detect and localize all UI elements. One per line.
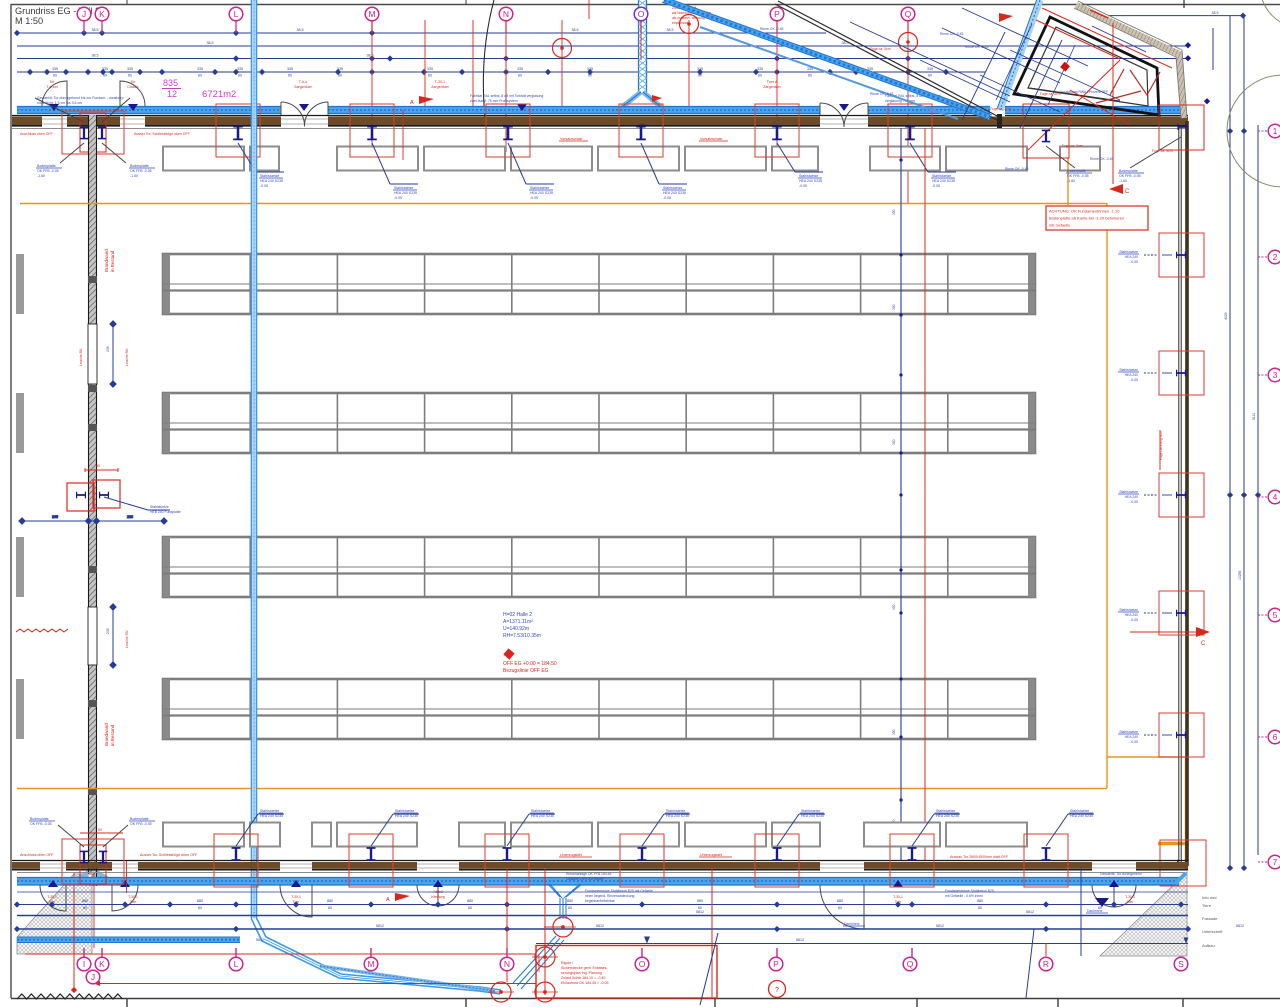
svg-text:-0.05: -0.05 xyxy=(394,196,402,200)
svg-text:350: 350 xyxy=(892,729,896,735)
svg-text:HEA 240 S235: HEA 240 S235 xyxy=(799,179,822,183)
svg-text:5812: 5812 xyxy=(376,924,384,928)
svg-text:?: ? xyxy=(775,987,779,994)
svg-text:T-30-1: T-30-1 xyxy=(435,80,445,84)
svg-text:Stahlstuetze: Stahlstuetze xyxy=(1119,490,1138,494)
svg-text:HEA 240: HEA 240 xyxy=(1125,613,1138,617)
svg-text:Stahlstuetze: Stahlstuetze xyxy=(1119,608,1138,612)
svg-text:Fuge ca. 3cm: Fuge ca. 3cm xyxy=(990,107,1011,111)
svg-text:HEA 240: HEA 240 xyxy=(1125,735,1138,739)
svg-text:5812: 5812 xyxy=(596,924,604,928)
svg-text:HEA 240 S235: HEA 240 S235 xyxy=(666,814,689,818)
svg-text:2: 2 xyxy=(1273,252,1278,262)
svg-text:-0.05: -0.05 xyxy=(799,184,807,188)
svg-text:-0.05: -0.05 xyxy=(1130,740,1138,744)
svg-text:880: 880 xyxy=(327,899,333,903)
svg-text:Bodenplatte ab Kante bei -1.20: Bodenplatte ab Kante bei -1.20 betoniere… xyxy=(1049,216,1124,221)
svg-text:Fundamentrinne Stahlbeton B25: Fundamentrinne Stahlbeton B25 xyxy=(945,889,994,893)
svg-text:Vorsatzschale: Vorsatzschale xyxy=(700,137,722,141)
svg-text:Info und: Info und xyxy=(1202,895,1216,900)
svg-text:HEA 240 S235: HEA 240 S235 xyxy=(395,814,418,818)
svg-text:Sinkkasten: Sinkkasten xyxy=(537,954,541,972)
svg-text:Anschluss oben OFF: Anschluss oben OFF xyxy=(20,132,53,136)
svg-text:60: 60 xyxy=(328,906,332,910)
svg-text:Bodenplatte: Bodenplatte xyxy=(130,817,149,821)
svg-text:60: 60 xyxy=(698,74,702,78)
svg-text:HEA 240: HEA 240 xyxy=(1125,255,1138,259)
svg-text:38.5: 38.5 xyxy=(92,54,99,58)
svg-text:Stahlstuetze: Stahlstuetze xyxy=(530,186,549,190)
svg-text:Fuge ca. 3cm: Fuge ca. 3cm xyxy=(870,47,891,51)
svg-text:350: 350 xyxy=(892,604,896,610)
svg-text:P: P xyxy=(774,9,780,19)
svg-text:Ausser Tor, Schliessfolge oben: Ausser Tor, Schliessfolge oben OFF xyxy=(134,132,190,136)
svg-text:Rinne OK -0.45: Rinne OK -0.45 xyxy=(940,32,963,36)
svg-text:Kiesfang: Kiesfang xyxy=(431,895,444,899)
svg-text:335: 335 xyxy=(52,67,58,71)
svg-text:OK FFB -0.05: OK FFB -0.05 xyxy=(1119,174,1141,178)
svg-text:Leuchte RN: Leuchte RN xyxy=(125,348,129,366)
svg-text:Stahlstuetze: Stahlstuetze xyxy=(801,809,820,813)
svg-text:K: K xyxy=(99,9,105,19)
svg-text:60: 60 xyxy=(103,74,107,78)
svg-text:Bodenplatte: Bodenplatte xyxy=(30,817,49,821)
svg-text:C: C xyxy=(1125,189,1130,195)
svg-text:Stahlstuetze: Stahlstuetze xyxy=(663,186,682,190)
svg-text:Zargentuer: Zargentuer xyxy=(294,85,312,89)
svg-text:-0.05: -0.05 xyxy=(1130,378,1138,382)
svg-text:Fuge ca. 3cm: Fuge ca. 3cm xyxy=(1062,144,1083,148)
svg-text:L: L xyxy=(234,9,239,19)
svg-text:HEA 240 S235: HEA 240 S235 xyxy=(932,179,955,183)
svg-text:60: 60 xyxy=(128,74,132,78)
svg-text:Stahlstuetze: Stahlstuetze xyxy=(150,505,169,509)
svg-text:OK FFB -0.05: OK FFB -0.05 xyxy=(130,822,152,826)
svg-text:Stahlstuetze: Stahlstuetze xyxy=(394,186,413,190)
svg-text:Ausser Tor, Schliessfolge oben: Ausser Tor, Schliessfolge oben OFF xyxy=(140,853,198,857)
svg-text:60: 60 xyxy=(198,906,202,910)
svg-text:Stahlstuetze: Stahlstuetze xyxy=(799,174,818,178)
svg-text:Stahlstuetze: Stahlstuetze xyxy=(395,809,414,813)
svg-text:80: 80 xyxy=(96,464,100,468)
svg-text:335: 335 xyxy=(237,67,243,71)
svg-text:Rinne OK -0.45: Rinne OK -0.45 xyxy=(965,45,988,49)
svg-text:335: 335 xyxy=(697,67,703,71)
svg-text:HEA 240 S235: HEA 240 S235 xyxy=(663,191,686,195)
svg-text:335: 335 xyxy=(587,67,593,71)
svg-text:OK FFB -0.05: OK FFB -0.05 xyxy=(37,169,59,173)
svg-text:M: M xyxy=(368,9,375,19)
svg-text:-0.05: -0.05 xyxy=(530,196,538,200)
svg-text:P: P xyxy=(773,959,779,969)
svg-text:6: 6 xyxy=(1273,732,1278,742)
svg-text:A: A xyxy=(386,897,390,903)
svg-text:HEA 240 S235: HEA 240 S235 xyxy=(260,814,283,818)
svg-text:5812: 5812 xyxy=(936,924,944,928)
svg-text:Zargentuer: Zargentuer xyxy=(763,85,781,89)
svg-text:Leuchte RN: Leuchte RN xyxy=(125,630,129,648)
svg-text:3: 3 xyxy=(1273,370,1278,380)
svg-text:Bodenplatte: Bodenplatte xyxy=(1067,169,1086,173)
svg-text:Zargentuer: Zargentuer xyxy=(431,85,449,89)
svg-text:Stahlstuetze: Stahlstuetze xyxy=(1070,809,1089,813)
svg-text:60: 60 xyxy=(838,906,842,910)
svg-text:serungsplan Ing. Planung: serungsplan Ing. Planung xyxy=(561,971,602,975)
svg-text:N: N xyxy=(503,9,509,19)
svg-text:OK FFB -0.05: OK FFB -0.05 xyxy=(30,822,52,826)
svg-text:OFF EG +0.00 = 184.50: OFF EG +0.00 = 184.50 xyxy=(503,661,557,667)
svg-text:Q: Q xyxy=(907,959,914,969)
svg-text:10255: 10255 xyxy=(1238,570,1242,580)
svg-text:A: A xyxy=(410,100,414,106)
svg-text:Stahlstuetze: Stahlstuetze xyxy=(531,809,550,813)
svg-text:5: 5 xyxy=(1273,610,1278,620)
svg-text:4: 4 xyxy=(1273,492,1278,502)
svg-text:Gefaelle 0.5% zur Rigole: Gefaelle 0.5% zur Rigole xyxy=(566,877,604,881)
svg-text:RH=7.53/10.35m: RH=7.53/10.35m xyxy=(503,633,541,639)
svg-text:4025: 4025 xyxy=(1224,312,1228,320)
svg-text:295: 295 xyxy=(52,515,58,519)
svg-text:N: N xyxy=(504,959,510,969)
svg-text:38.5: 38.5 xyxy=(572,28,579,32)
svg-text:5812: 5812 xyxy=(696,910,704,914)
svg-text:HEA 240 S235: HEA 240 S235 xyxy=(260,179,283,183)
svg-text:Gewaehlt: Tor durchgehend bis: Gewaehlt: Tor durchgehend bis zur Fundam… xyxy=(37,96,124,100)
svg-text:5812: 5812 xyxy=(256,938,264,942)
svg-text:HEA 240 S235: HEA 240 S235 xyxy=(531,814,554,818)
svg-text:-1.60: -1.60 xyxy=(1119,179,1127,183)
svg-text:nicht dicht, 1.5 cm bis 3.5 cm: nicht dicht, 1.5 cm bis 3.5 cm xyxy=(37,101,82,105)
svg-text:J: J xyxy=(82,9,86,19)
svg-text:Unterschrift: Unterschrift xyxy=(1202,929,1223,934)
svg-text:OK FFB -0.05: OK FFB -0.05 xyxy=(1067,174,1089,178)
svg-text:38.5: 38.5 xyxy=(367,54,374,58)
svg-text:Vorsatzschale: Vorsatzschale xyxy=(560,137,582,141)
svg-text:Stahlstuetze: Stahlstuetze xyxy=(1119,730,1138,734)
svg-text:60: 60 xyxy=(238,74,242,78)
svg-text:HEA 240: HEA 240 xyxy=(1125,373,1138,377)
svg-text:A=1371.11m²: A=1371.11m² xyxy=(503,619,533,625)
svg-text:Zulauf Sohle 184.10 = -0.40: Zulauf Sohle 184.10 = -0.40 xyxy=(561,976,605,980)
svg-text:350: 350 xyxy=(892,439,896,445)
svg-text:Einlaufrost OK 184.45 = -0.05: Einlaufrost OK 184.45 = -0.05 xyxy=(561,981,608,985)
svg-text:60: 60 xyxy=(978,906,982,910)
svg-text:60: 60 xyxy=(758,74,762,78)
svg-text:I: I xyxy=(83,959,85,969)
svg-text:T-30-1: T-30-1 xyxy=(1125,895,1135,899)
svg-text:-0.05: -0.05 xyxy=(1130,618,1138,622)
svg-text:Q: Q xyxy=(905,9,912,19)
svg-text:60: 60 xyxy=(83,906,87,910)
svg-text:5812: 5812 xyxy=(796,938,804,942)
svg-text:HEA 240 S235: HEA 240 S235 xyxy=(801,814,824,818)
svg-text:in Bestand: in Bestand xyxy=(110,250,115,272)
svg-text:M: M xyxy=(367,959,374,969)
svg-text:-0.05: -0.05 xyxy=(1130,260,1138,264)
svg-text:T-b-u: T-b-u xyxy=(299,80,307,84)
svg-text:Stahlstuetze: Stahlstuetze xyxy=(666,809,685,813)
svg-text:12: 12 xyxy=(167,89,177,99)
svg-text:880: 880 xyxy=(837,899,843,903)
svg-text:38.5: 38.5 xyxy=(297,28,304,32)
svg-text:-0.05: -0.05 xyxy=(260,184,268,188)
svg-text:Rigole /: Rigole / xyxy=(561,961,573,965)
svg-text:mit Gefaelle - 0.5% innen: mit Gefaelle - 0.5% innen xyxy=(945,894,983,898)
svg-text:M 1:50: M 1:50 xyxy=(15,16,43,26)
svg-text:38.5: 38.5 xyxy=(667,28,674,32)
svg-text:335: 335 xyxy=(927,67,933,71)
svg-text:60: 60 xyxy=(518,74,522,78)
svg-text:335: 335 xyxy=(287,67,293,71)
svg-text:Fabrikat RAL selbst, 8 dB mit: Fabrikat RAL selbst, 8 dB mit Torblatt v… xyxy=(470,94,543,98)
svg-text:HEA 240 S235: HEA 240 S235 xyxy=(1070,814,1093,818)
svg-text:335: 335 xyxy=(337,67,343,71)
svg-text:ACHTUNG: OK Fundamentrinnen -: ACHTUNG: OK Fundamentrinnen -1.10 xyxy=(1049,209,1120,214)
svg-text:60: 60 xyxy=(198,74,202,78)
svg-text:L: L xyxy=(234,959,239,969)
svg-text:Stahlstuetze: Stahlstuetze xyxy=(932,174,951,178)
svg-text:335: 335 xyxy=(102,67,108,71)
svg-text:Ausbau Tor 2800/4500mm statt O: Ausbau Tor 2800/4500mm statt OFF xyxy=(950,855,1009,859)
svg-text:-0.05: -0.05 xyxy=(663,196,671,200)
svg-text:Bezugslinie OFF EG: Bezugslinie OFF EG xyxy=(503,668,549,674)
svg-text:Tuer A: Tuer A xyxy=(767,80,778,84)
svg-text:Leuchte RN: Leuchte RN xyxy=(79,348,83,366)
svg-text:S: S xyxy=(1178,959,1184,969)
svg-text:als zusaetzl. oeffnung: als zusaetzl. oeffnung xyxy=(672,16,705,20)
svg-text:Rinne OK -0.45: Rinne OK -0.45 xyxy=(1090,157,1113,161)
svg-text:Fundamentrinne Stahlbeton B25: Fundamentrinne Stahlbeton B25 mit Gefael… xyxy=(585,889,653,893)
svg-text:60: 60 xyxy=(588,74,592,78)
svg-text:1: 1 xyxy=(1273,126,1278,136)
svg-text:335: 335 xyxy=(517,67,523,71)
svg-text:5812: 5812 xyxy=(1026,910,1034,914)
svg-text:60: 60 xyxy=(808,74,812,78)
svg-text:5110: 5110 xyxy=(1252,413,1256,420)
svg-text:38.5: 38.5 xyxy=(1212,11,1219,15)
svg-text:K: K xyxy=(99,959,105,969)
svg-text:Aufbau: Aufbau xyxy=(1202,943,1215,948)
svg-text:236: 236 xyxy=(106,628,110,634)
svg-text:-0.05: -0.05 xyxy=(932,184,940,188)
svg-text:J: J xyxy=(91,972,95,982)
svg-text:Gewaehlt: Tor durchgehend: Gewaehlt: Tor durchgehend xyxy=(1100,872,1142,876)
svg-text:T-30-1: T-30-1 xyxy=(47,895,57,899)
svg-text:in Bestand: in Bestand xyxy=(110,724,115,746)
svg-text:O: O xyxy=(639,959,646,969)
svg-text:Bodenplatte: Bodenplatte xyxy=(37,164,56,168)
svg-text:880: 880 xyxy=(467,899,473,903)
svg-text:335: 335 xyxy=(427,67,433,71)
svg-text:880: 880 xyxy=(977,899,983,903)
svg-text:Tuer: Tuer xyxy=(1127,900,1135,904)
svg-text:350: 350 xyxy=(892,209,896,215)
svg-text:HEB 240 Fundplatte: HEB 240 Fundplatte xyxy=(150,510,181,514)
svg-text:38.5: 38.5 xyxy=(207,41,214,45)
svg-text:Stahlstuetze: Stahlstuetze xyxy=(1119,368,1138,372)
svg-text:Rinne OK -0.45: Rinne OK -0.45 xyxy=(1005,167,1028,171)
svg-text:Tuer: Tuer xyxy=(130,900,138,904)
svg-text:Unterzugstahl: Unterzugstahl xyxy=(560,853,582,857)
svg-text:HEA 240 S235: HEA 240 S235 xyxy=(936,814,959,818)
svg-text:335: 335 xyxy=(197,67,203,71)
svg-text:60: 60 xyxy=(928,74,932,78)
svg-text:Rinne OK -0.45: Rinne OK -0.45 xyxy=(760,27,783,31)
svg-text:6721m2: 6721m2 xyxy=(202,89,236,100)
svg-text:HEA 240 S235: HEA 240 S235 xyxy=(394,191,417,195)
svg-text:O: O xyxy=(638,9,645,19)
svg-text:60: 60 xyxy=(428,74,432,78)
svg-text:Fuge Dehnung 3cm: Fuge Dehnung 3cm xyxy=(1159,431,1163,460)
svg-text:-0.05: -0.05 xyxy=(1130,500,1138,504)
svg-text:innen liegend, Rinnenabdeckung: innen liegend, Rinnenabdeckung xyxy=(585,894,635,898)
svg-text:Fassade: Fassade xyxy=(1202,916,1218,921)
svg-text:Brandwand: Brandwand xyxy=(104,249,109,272)
svg-text:335: 335 xyxy=(757,67,763,71)
svg-text:Tor: Tor xyxy=(50,80,56,84)
svg-text:-1.60: -1.60 xyxy=(130,174,138,178)
svg-text:60: 60 xyxy=(468,906,472,910)
svg-text:Bodenplatte: Bodenplatte xyxy=(130,164,149,168)
svg-text:OK FFB -0.05: OK FFB -0.05 xyxy=(130,169,152,173)
svg-text:Rinne OK -0.45: Rinne OK -0.45 xyxy=(870,92,893,96)
svg-text:C: C xyxy=(1201,641,1206,647)
svg-text:Bodenplatte: Bodenplatte xyxy=(1119,169,1138,173)
svg-text:T-30-1: T-30-1 xyxy=(128,895,138,899)
svg-text:236: 236 xyxy=(106,346,110,352)
svg-text:Stahlstuetze: Stahlstuetze xyxy=(936,809,955,813)
svg-text:5812: 5812 xyxy=(1236,924,1244,928)
svg-text:begehbar/befahrbar: begehbar/befahrbar xyxy=(585,899,616,903)
svg-text:60: 60 xyxy=(53,74,57,78)
svg-text:236: 236 xyxy=(127,515,133,519)
svg-text:835: 835 xyxy=(163,78,178,88)
svg-text:mit Gefaelle: mit Gefaelle xyxy=(1049,223,1071,228)
svg-text:H=02 Halle 2: H=02 Halle 2 xyxy=(503,612,532,618)
svg-text:80: 80 xyxy=(98,828,102,832)
svg-text:60: 60 xyxy=(288,74,292,78)
svg-text:Stahlstuetze: Stahlstuetze xyxy=(1119,250,1138,254)
svg-text:880: 880 xyxy=(567,899,573,903)
svg-text:Stahlstuetze: Stahlstuetze xyxy=(260,809,279,813)
svg-text:880: 880 xyxy=(82,899,88,903)
svg-text:Tiere: Tiere xyxy=(1202,903,1212,908)
svg-text:U=140.92m: U=140.92m xyxy=(503,626,529,632)
svg-text:Brandwand: Brandwand xyxy=(104,723,109,746)
svg-text:Dachrinne: Dachrinne xyxy=(1087,909,1103,913)
svg-text:HEA 240: HEA 240 xyxy=(1125,495,1138,499)
svg-text:335: 335 xyxy=(127,67,133,71)
svg-text:350: 350 xyxy=(892,304,896,310)
svg-text:R: R xyxy=(1043,959,1049,969)
svg-text:HEA 240 S235: HEA 240 S235 xyxy=(530,191,553,195)
svg-text:Rinnenanlage OK FFB 184.45: Rinnenanlage OK FFB 184.45 xyxy=(566,872,612,876)
svg-text:60: 60 xyxy=(568,906,572,910)
svg-text:Fuge ca. 3cm: Fuge ca. 3cm xyxy=(1040,92,1061,96)
svg-text:880: 880 xyxy=(197,899,203,903)
svg-text:7: 7 xyxy=(1273,857,1278,867)
svg-text:T-30-1: T-30-1 xyxy=(893,895,903,899)
svg-text:T-30-1: T-30-1 xyxy=(291,895,301,899)
svg-text:Stahlstuetze: Stahlstuetze xyxy=(260,174,279,178)
svg-text:Dachrinne: Dachrinne xyxy=(844,922,860,926)
svg-text:38.5: 38.5 xyxy=(92,28,99,32)
svg-text:-1.60: -1.60 xyxy=(37,174,45,178)
svg-text:Sickerstrecke gem. Entwaes-: Sickerstrecke gem. Entwaes- xyxy=(561,966,608,970)
svg-text:60: 60 xyxy=(338,74,342,78)
svg-text:-1.60: -1.60 xyxy=(1067,179,1075,183)
svg-text:Anschluss oben OFF: Anschluss oben OFF xyxy=(20,853,54,857)
svg-text:880: 880 xyxy=(697,899,703,903)
svg-text:zwei-fluegl. 75 mm Profilsyste: zwei-fluegl. 75 mm Profilsystem xyxy=(470,99,518,103)
svg-text:Unterzugstahl: Unterzugstahl xyxy=(700,853,722,857)
